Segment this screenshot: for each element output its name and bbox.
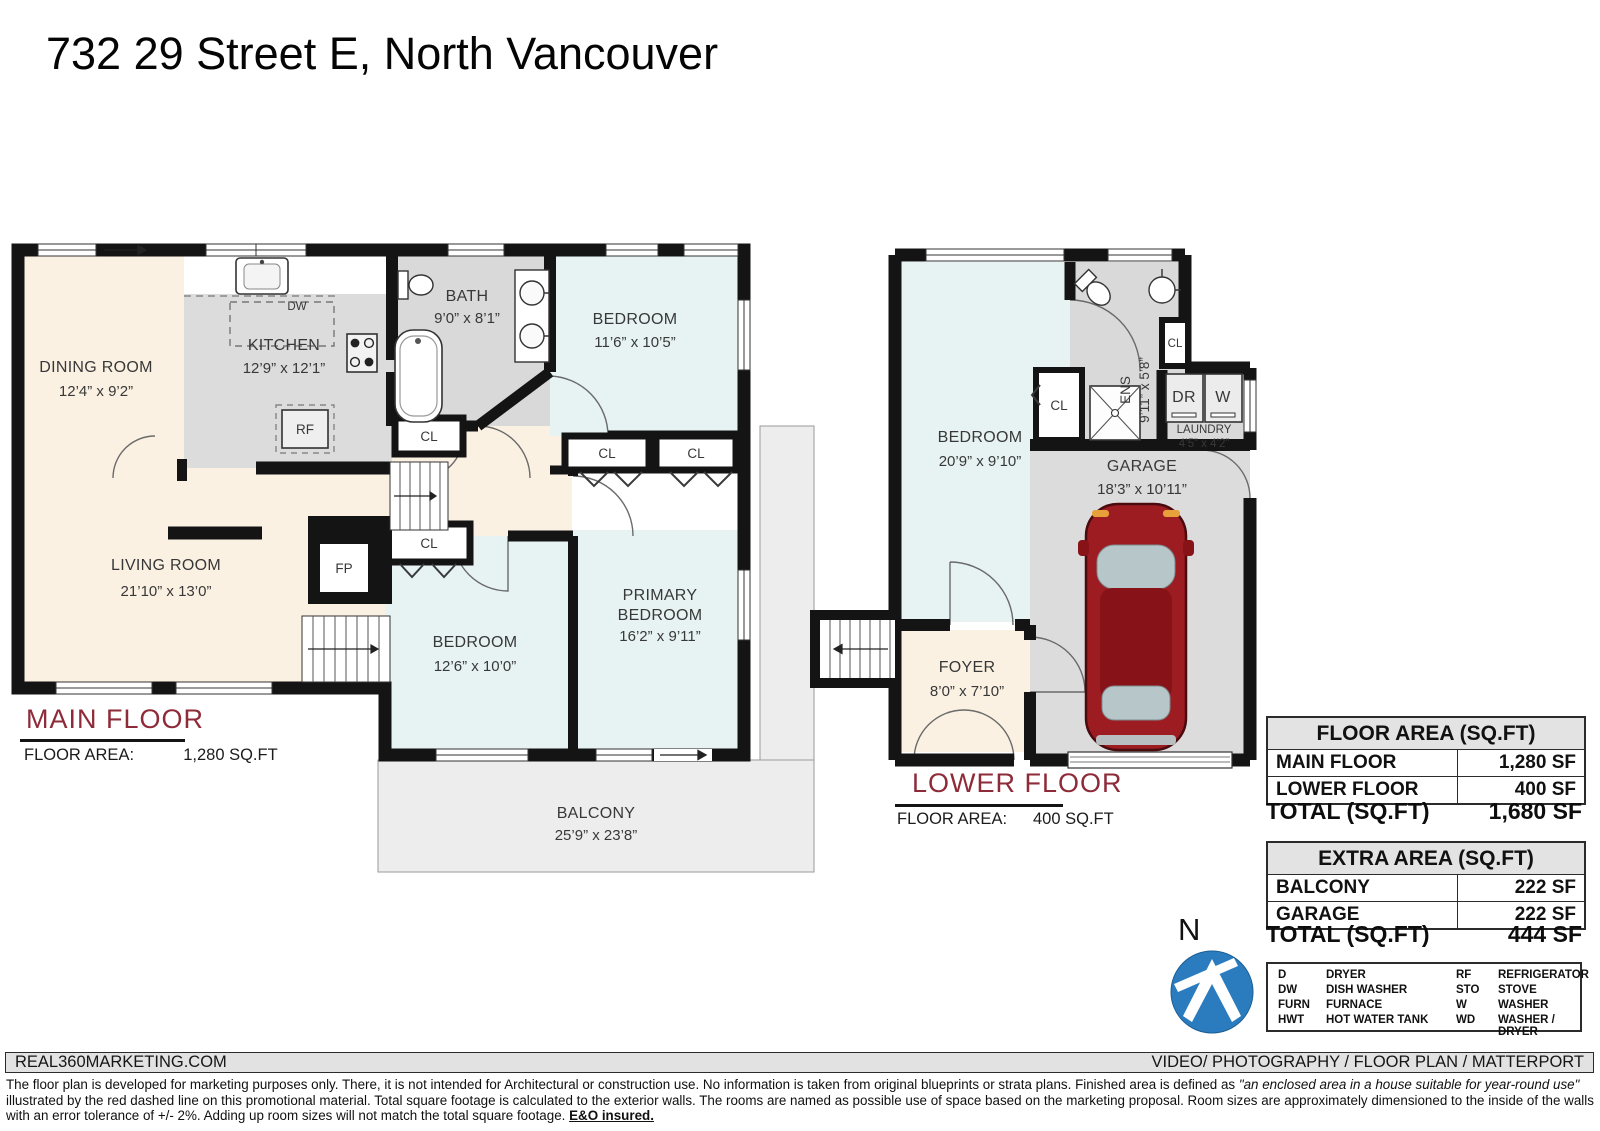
- dining-label: DINING ROOM: [39, 359, 153, 376]
- disclaimer-text-1: The floor plan is developed for marketin…: [6, 1077, 1239, 1092]
- garage-dims: 18’3” x 10’11”: [1097, 481, 1187, 498]
- floor-area-table: FLOOR AREA (SQ.FT) MAIN FLOOR 1,280 SF L…: [1266, 716, 1586, 805]
- legend-desc: STOVE: [1498, 984, 1589, 999]
- disclaimer-bold: E&O insured.: [569, 1108, 654, 1123]
- wall-stub: [177, 459, 187, 481]
- w-label: W: [1215, 389, 1231, 406]
- legend-abbr: RF: [1456, 969, 1498, 984]
- disclaimer-italic: "an enclosed area in a house suitable fo…: [1239, 1077, 1580, 1092]
- bedroom-top-dims: 11’6” x 10’5”: [594, 334, 675, 351]
- stairs-hall: [390, 462, 448, 530]
- total-label: TOTAL (SQ.FT): [1266, 921, 1430, 948]
- bath-dims: 9’0” x 8’1”: [434, 310, 500, 327]
- cl-label: CL: [598, 446, 616, 461]
- stairs-living: [302, 616, 390, 682]
- legend-desc: HOT WATER TANK: [1326, 1014, 1456, 1029]
- kitchen-dims: 12’9” x 12’1”: [243, 360, 326, 377]
- extra-area-table-header: EXTRA AREA (SQ.FT): [1268, 843, 1584, 875]
- car-windshield: [1097, 545, 1175, 589]
- primary-dims: 16’2” x 9’11”: [619, 628, 700, 645]
- fireplace: FP: [308, 516, 392, 604]
- footer-bar: REAL360MARKETING.COM VIDEO/ PHOTOGRAPHY …: [5, 1052, 1594, 1073]
- legend-abbr: STO: [1456, 984, 1498, 999]
- legend-desc: DISH WASHER: [1326, 984, 1456, 999]
- garage-label: GARAGE: [1107, 458, 1177, 475]
- main-floor-area: FLOOR AREA: 1,280 SQ.FT: [24, 746, 278, 765]
- extra-area-total: TOTAL (SQ.FT) 444 SF: [1266, 921, 1582, 948]
- cl-label: CL: [420, 429, 438, 444]
- lower-floor-title: LOWER FLOOR: [912, 768, 1123, 799]
- bedroom-left-label: BEDROOM: [433, 634, 518, 651]
- main-floor-plan: BALCONY 25’9” x 23’8”: [8, 240, 818, 880]
- main-floor-area-label: FLOOR AREA:: [24, 746, 134, 764]
- legend-abbr: HWT: [1278, 1014, 1326, 1029]
- refrigerator-icon: RF: [276, 405, 334, 453]
- balcony-label: BALCONY: [557, 805, 636, 822]
- bath-label: BATH: [446, 288, 489, 305]
- footer-brand: REAL360MARKETING.COM: [15, 1053, 227, 1072]
- ens-dims: 9’11” x 5’8”: [1137, 357, 1152, 423]
- car-roof: [1100, 588, 1172, 700]
- main-floor-title: MAIN FLOOR: [26, 704, 204, 735]
- fp-label: FP: [335, 561, 352, 576]
- legend-desc: REFRIGERATOR: [1498, 969, 1589, 984]
- legend-desc: DRYER: [1326, 969, 1456, 984]
- car-rear-window: [1102, 686, 1170, 720]
- car-bumper: [1096, 735, 1176, 745]
- lower-floor-plan: CL CL DR W: [800, 240, 1270, 785]
- main-floor-underline: [20, 739, 185, 742]
- living-label: LIVING ROOM: [111, 557, 221, 574]
- cl-label: CL: [687, 446, 705, 461]
- dr-label: DR: [1172, 389, 1196, 406]
- lower-bedroom-label: BEDROOM: [938, 429, 1023, 446]
- car-mirror-right: [1183, 540, 1194, 556]
- balcony-dims: 25’9” x 23’8”: [555, 827, 638, 844]
- north-label: N: [1178, 912, 1200, 948]
- kitchen-label: KITCHEN: [248, 337, 320, 354]
- legend-abbr: WD: [1456, 1014, 1498, 1029]
- footer-services: VIDEO/ PHOTOGRAPHY / FLOOR PLAN / MATTER…: [1152, 1053, 1584, 1072]
- lower-bedroom-dims: 20’9” x 9’10”: [939, 453, 1022, 470]
- vanity-sinks-icon: [515, 270, 550, 362]
- bedroom-left-dims: 12’6” x 10’0”: [434, 658, 517, 675]
- lower-floor-area-value: 400 SQ.FT: [1033, 810, 1114, 829]
- page-title: 732 29 Street E, North Vancouver: [46, 28, 718, 80]
- cl-label: CL: [420, 536, 438, 551]
- dw-label: DW: [287, 301, 306, 313]
- car-headlight-right: [1163, 510, 1180, 517]
- bedroom-top-label: BEDROOM: [593, 311, 678, 328]
- stove-icon: [347, 334, 377, 372]
- row-label: BALCONY: [1268, 875, 1458, 901]
- extra-area-table: EXTRA AREA (SQ.FT) BALCONY 222 SF GARAGE…: [1266, 841, 1586, 930]
- total-value: 444 SF: [1508, 921, 1582, 948]
- dining-dims: 12’4” x 9’2”: [59, 383, 133, 400]
- floor-area-total: TOTAL (SQ.FT) 1,680 SF: [1266, 798, 1582, 825]
- foyer-label: FOYER: [939, 659, 996, 676]
- row-value: 222 SF: [1458, 875, 1584, 901]
- table-row: BALCONY 222 SF: [1268, 875, 1584, 902]
- table-row: MAIN FLOOR 1,280 SF: [1268, 750, 1584, 777]
- total-value: 1,680 SF: [1489, 798, 1582, 825]
- total-label: TOTAL (SQ.FT): [1266, 798, 1430, 825]
- primary-label-1: PRIMARY: [623, 587, 698, 604]
- legend-desc: FURNACE: [1326, 999, 1456, 1014]
- row-label: MAIN FLOOR: [1268, 750, 1458, 776]
- lower-floor-underline: [895, 804, 1063, 807]
- ens-label: ENS: [1118, 376, 1133, 404]
- legend-box: D DRYER RF REFRIGERATOR DW DISH WASHER S…: [1266, 962, 1582, 1032]
- legend-abbr: FURN: [1278, 999, 1326, 1014]
- car-mirror-left: [1078, 540, 1089, 556]
- disclaimer-text-2: illustrated by the red dashed line on th…: [6, 1093, 1594, 1124]
- north-arrow-icon: [1170, 950, 1254, 1034]
- car: [1078, 504, 1194, 750]
- legend-desc: WASHER / DRYER: [1498, 1014, 1589, 1029]
- legend-abbr: DW: [1278, 984, 1326, 999]
- legend-abbr: W: [1456, 999, 1498, 1014]
- primary-label-2: BEDROOM: [618, 607, 703, 624]
- cl-label: CL: [1050, 398, 1068, 413]
- garage-door: [1068, 752, 1232, 768]
- laundry-dims: 4’5” x 4’2”: [1179, 438, 1230, 450]
- row-value: 1,280 SF: [1458, 750, 1584, 776]
- living-dims: 21’10” x 13’0”: [121, 583, 212, 600]
- lower-stairs: [815, 615, 895, 683]
- main-floor-area-value: 1,280 SQ.FT: [183, 746, 277, 764]
- legend-desc: WASHER: [1498, 999, 1589, 1014]
- footer-disclaimer: The floor plan is developed for marketin…: [6, 1077, 1594, 1124]
- bathtub-icon: [395, 330, 442, 422]
- rf-label: RF: [296, 422, 314, 437]
- floor-area-table-header: FLOOR AREA (SQ.FT): [1268, 718, 1584, 750]
- lower-floor-area-label: FLOOR AREA:: [897, 810, 1007, 829]
- legend-abbr: D: [1278, 969, 1326, 984]
- laundry-label: LAUNDRY: [1177, 424, 1232, 436]
- car-headlight-left: [1092, 510, 1109, 517]
- cl-label: CL: [1168, 338, 1183, 350]
- foyer-dims: 8’0” x 7’10”: [930, 683, 1004, 700]
